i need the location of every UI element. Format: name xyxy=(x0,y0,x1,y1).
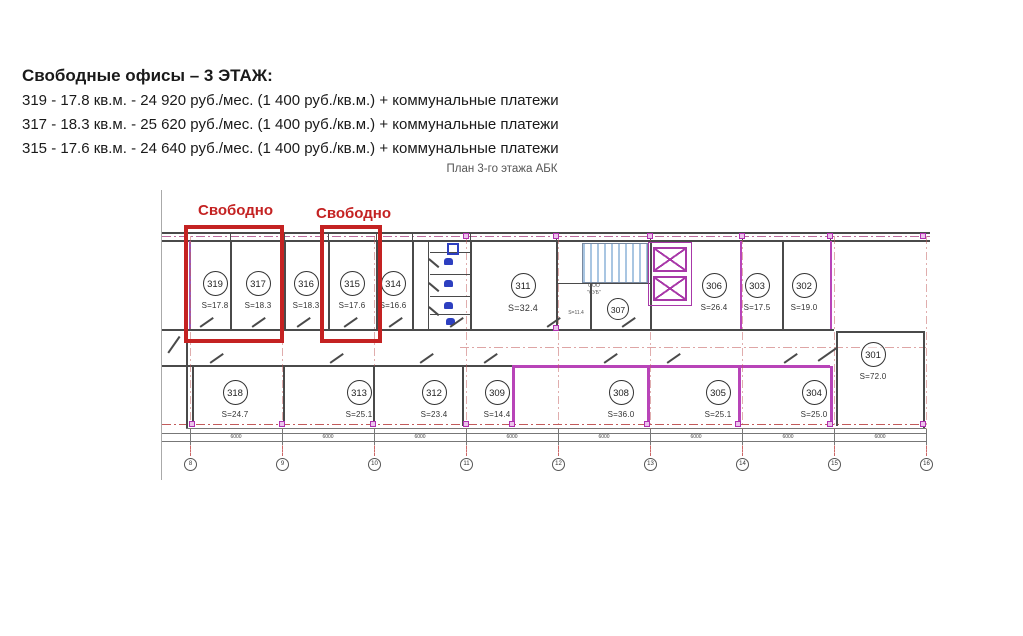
room-number-circle: 316 xyxy=(294,271,319,296)
room-area-label: S=19.0 xyxy=(774,303,834,312)
room-tag-308: 308 S=36.0 xyxy=(591,380,651,419)
corridor-wall-south-right xyxy=(512,365,830,368)
axis-line-bottom xyxy=(162,424,926,425)
room-tag-307: 307 xyxy=(588,298,648,320)
room-number-circle: 312 xyxy=(422,380,447,405)
axis-leader xyxy=(742,446,743,456)
grid-node xyxy=(827,421,833,427)
room-tag-313: 313 S=25.1 xyxy=(329,380,389,419)
room-area-label: S=14.4 xyxy=(467,410,527,419)
door xyxy=(297,317,311,327)
grid-node xyxy=(553,233,559,239)
floor-plan-drawing: 319 S=17.8 317 S=18.3 316 S=18.3 315 S=1… xyxy=(0,0,1023,636)
door xyxy=(484,353,498,363)
grid-node xyxy=(189,421,195,427)
grid-node xyxy=(920,421,926,427)
dimension-tick xyxy=(742,429,743,445)
staircase xyxy=(582,243,648,283)
room-area-label: S=25.0 xyxy=(784,410,844,419)
dimension-tick xyxy=(466,429,467,445)
grid-node xyxy=(463,233,469,239)
axis-leader xyxy=(926,446,927,456)
axis-leader xyxy=(466,446,467,456)
grid-axis-line xyxy=(558,236,559,452)
grid-node xyxy=(370,421,376,427)
exterior-wall-right xyxy=(923,331,925,428)
room-tag-318: 318 S=24.7 xyxy=(205,380,265,419)
room-tag-309: 309 S=14.4 xyxy=(467,380,527,419)
dimension-label: 6000 xyxy=(860,434,900,440)
toilet-icon xyxy=(444,280,453,287)
axis-bubble: 15 xyxy=(828,458,841,471)
dimension-line xyxy=(162,433,926,434)
grid-node xyxy=(509,421,515,427)
wc-stall-wall xyxy=(430,274,470,275)
door xyxy=(667,353,681,363)
dimension-label: 6000 xyxy=(308,434,348,440)
grid-node xyxy=(827,233,833,239)
room-number-circle: 311 xyxy=(511,273,536,298)
room-number-circle: 306 xyxy=(702,273,727,298)
wall-wc-311 xyxy=(470,241,472,329)
dimension-label: 6000 xyxy=(676,434,716,440)
axis-bubble: 16 xyxy=(920,458,933,471)
grid-node xyxy=(739,233,745,239)
dimension-tick xyxy=(558,429,559,445)
dimension-label: 6000 xyxy=(584,434,624,440)
door xyxy=(210,353,224,363)
door xyxy=(389,317,403,327)
grid-axis-line xyxy=(926,236,927,452)
room-area-label: S=23.4 xyxy=(404,410,464,419)
axis-bubble: 10 xyxy=(368,458,381,471)
elevator-icon xyxy=(653,247,687,272)
mullion xyxy=(284,232,285,240)
grid-node xyxy=(463,421,469,427)
axis-bubble: 13 xyxy=(644,458,657,471)
room-area-label: S=72.0 xyxy=(843,372,903,381)
wall-311-stairs xyxy=(556,241,558,329)
room-area-label: S=24.7 xyxy=(205,410,265,419)
grid-node xyxy=(647,233,653,239)
room-area-label: S=25.1 xyxy=(329,410,389,419)
room-number-circle: 313 xyxy=(347,380,372,405)
axis-bubble: 14 xyxy=(736,458,749,471)
dimension-tick xyxy=(926,429,927,445)
room-tag-312: 312 S=23.4 xyxy=(404,380,464,419)
room-number-circle: 304 xyxy=(802,380,827,405)
wc-sink-icon xyxy=(447,243,459,255)
dimension-tick xyxy=(190,429,191,445)
room-number-circle: 302 xyxy=(792,273,817,298)
room-tag-311: 311 S=32.4 xyxy=(493,273,553,313)
room-number-circle: 309 xyxy=(485,380,510,405)
room-area-label: S=25.1 xyxy=(688,410,748,419)
axis-leader xyxy=(650,446,651,456)
door xyxy=(784,353,798,363)
free-highlight-box-315 xyxy=(320,225,382,343)
room-number-circle: 305 xyxy=(706,380,731,405)
room-number-circle: 301 xyxy=(861,342,886,367)
grid-axis-line xyxy=(742,236,743,452)
dimension-tick xyxy=(834,429,835,445)
door xyxy=(167,336,180,353)
room-tag-302: 302 S=19.0 xyxy=(774,273,834,312)
toilet-icon xyxy=(444,258,453,265)
grid-node xyxy=(735,421,741,427)
wc-stall-wall xyxy=(430,296,470,297)
axis-bubble: 12 xyxy=(552,458,565,471)
room-area-label: S=36.0 xyxy=(591,410,651,419)
axis-bubble: 8 xyxy=(184,458,197,471)
grid-axis-line xyxy=(466,236,467,452)
room-number-circle: 307 xyxy=(607,298,629,320)
grid-node xyxy=(553,325,559,331)
wall-wc-left xyxy=(428,241,429,329)
dimension-label: 6000 xyxy=(492,434,532,440)
toilet-icon xyxy=(444,302,453,309)
wall-318-left xyxy=(192,366,194,426)
dimension-label: 6000 xyxy=(400,434,440,440)
axis-leader xyxy=(190,446,191,456)
drawing-left-edge xyxy=(161,190,162,480)
room-307-area: S=11.4 xyxy=(562,310,590,316)
exterior-wall-bottom xyxy=(186,428,926,429)
wc-door xyxy=(429,258,440,268)
room-number-circle: 308 xyxy=(609,380,634,405)
free-highlight-box-319-317 xyxy=(184,225,284,343)
free-label-1: Свободно xyxy=(198,202,273,219)
axis-bubble: 9 xyxy=(276,458,289,471)
room-area-label: S=32.4 xyxy=(493,303,553,313)
grid-axis-line xyxy=(834,236,835,452)
axis-leader xyxy=(282,446,283,456)
dimension-line xyxy=(162,441,926,442)
free-label-2: Свободно xyxy=(316,205,391,222)
grid-node xyxy=(920,233,926,239)
room-tag-301: 301 S=72.0 xyxy=(843,342,903,381)
door xyxy=(604,353,618,363)
axis-leader xyxy=(834,446,835,456)
wc-door xyxy=(429,282,440,292)
dimension-tick xyxy=(282,429,283,445)
axis-leader xyxy=(558,446,559,456)
dimension-label: 6000 xyxy=(768,434,808,440)
axis-leader xyxy=(374,446,375,456)
tenant-name-line1: ООО xyxy=(580,283,608,289)
dimension-label: 6000 xyxy=(216,434,256,440)
elevator-icon xyxy=(653,276,687,301)
grid-node xyxy=(644,421,650,427)
room-tag-305: 305 S=25.1 xyxy=(688,380,748,419)
corridor-wall-south-left xyxy=(162,365,512,367)
dimension-tick xyxy=(374,429,375,445)
room-number-circle: 314 xyxy=(381,271,406,296)
room-301-top-wall xyxy=(836,331,924,333)
room-tag-304: 304 S=25.0 xyxy=(784,380,844,419)
door xyxy=(420,353,434,363)
mullion xyxy=(412,232,413,240)
axis-bubble: 11 xyxy=(460,458,473,471)
room-number-circle: 318 xyxy=(223,380,248,405)
mullion xyxy=(470,232,471,240)
wall-318-313 xyxy=(283,366,285,426)
room-number-circle: 303 xyxy=(745,273,770,298)
slide: Свободные офисы – 3 ЭТАЖ: 319 - 17.8 кв.… xyxy=(0,0,1023,636)
dimension-tick xyxy=(650,429,651,445)
grid-node xyxy=(279,421,285,427)
tenant-name-line2: "СУБ" xyxy=(580,290,608,296)
door xyxy=(330,353,344,363)
